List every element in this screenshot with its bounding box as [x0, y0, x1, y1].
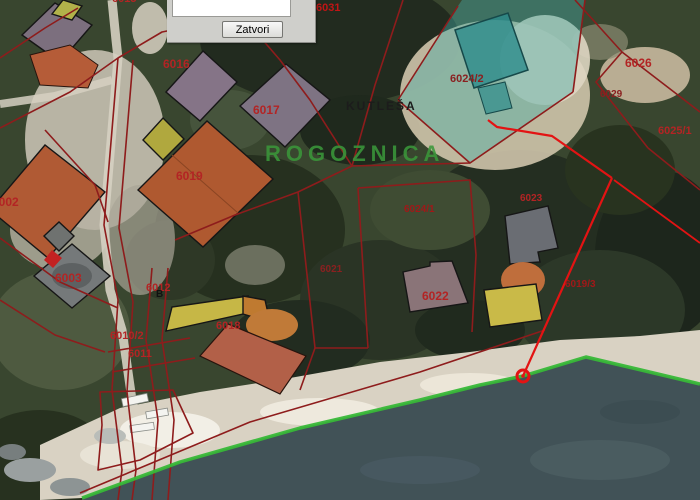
close-button[interactable]: Zatvori	[222, 21, 283, 38]
map-viewport[interactable]: 603160156016601760196002600360126010/260…	[0, 0, 700, 500]
aerial-map[interactable]	[0, 0, 700, 500]
dialog-panel: Zatvori	[167, 0, 316, 43]
dialog-content	[172, 0, 291, 17]
